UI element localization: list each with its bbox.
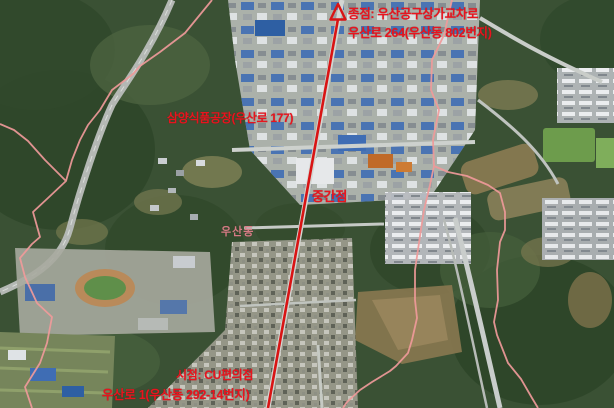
satellite-map-image <box>0 0 614 408</box>
stadium-field <box>84 276 126 300</box>
satellite-map-view: 종점: 우산공구상가교차로 우산로 264(우산동 802번지) 삼양식품공장(… <box>0 0 614 408</box>
district-name-label: 우산동 <box>221 223 254 239</box>
orange-roof <box>368 154 393 168</box>
midpoint-label: 중간점 <box>312 186 347 205</box>
start-point-label-line1: 시점: CU편의점 <box>176 366 253 383</box>
campus-area <box>15 248 215 336</box>
orange-roof <box>396 162 412 172</box>
factory-label: 삼양식품공장(우산로 177) <box>167 109 293 126</box>
end-point-label-line1: 종점: 우산공구상가교차로 <box>348 3 478 22</box>
end-point-label-line2: 우산로 264(우산동 802번지) <box>348 22 492 41</box>
start-point-label-line2: 우산로 1(우산동 292-14번지) <box>102 384 249 403</box>
fields-bottom-left <box>0 332 115 408</box>
